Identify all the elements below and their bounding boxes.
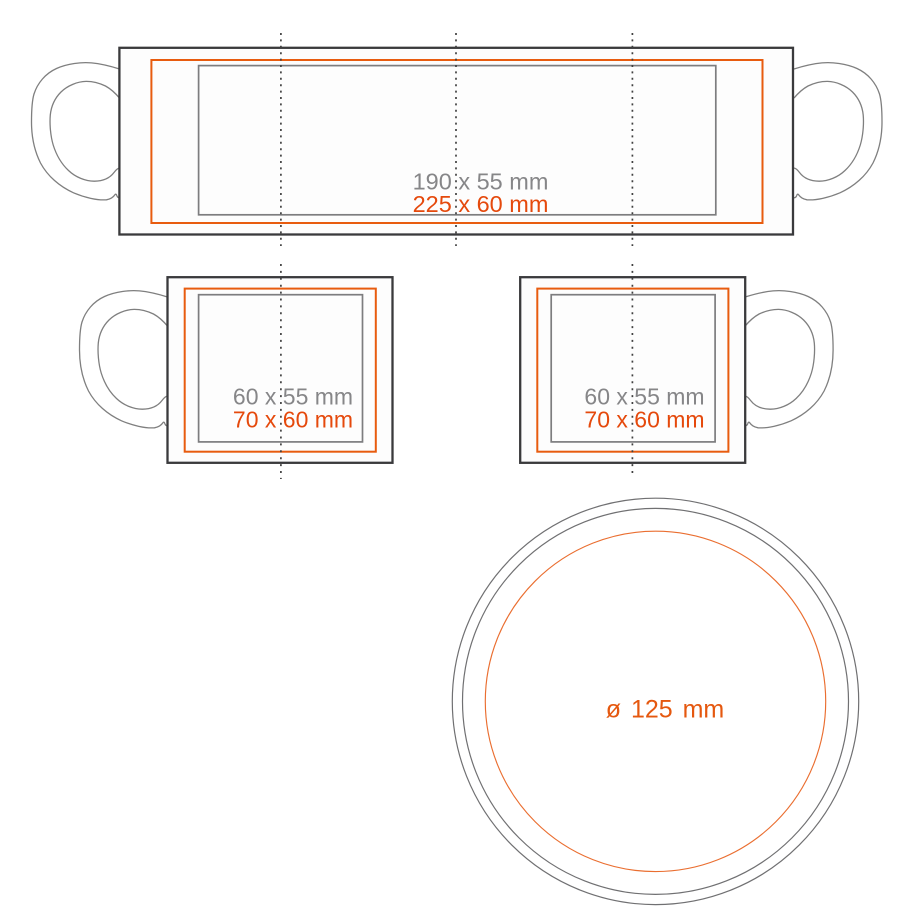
svg-text:70 x 60 mm: 70 x 60 mm [584, 407, 704, 433]
svg-text:225 x 60 mm: 225 x 60 mm [413, 191, 549, 217]
svg-text:60 x 55 mm: 60 x 55 mm [584, 383, 704, 409]
svg-text:70 x 60 mm: 70 x 60 mm [233, 407, 353, 433]
svg-text:ø 125 mm: ø 125 mm [606, 696, 725, 724]
svg-text:60 x 55 mm: 60 x 55 mm [233, 383, 353, 409]
